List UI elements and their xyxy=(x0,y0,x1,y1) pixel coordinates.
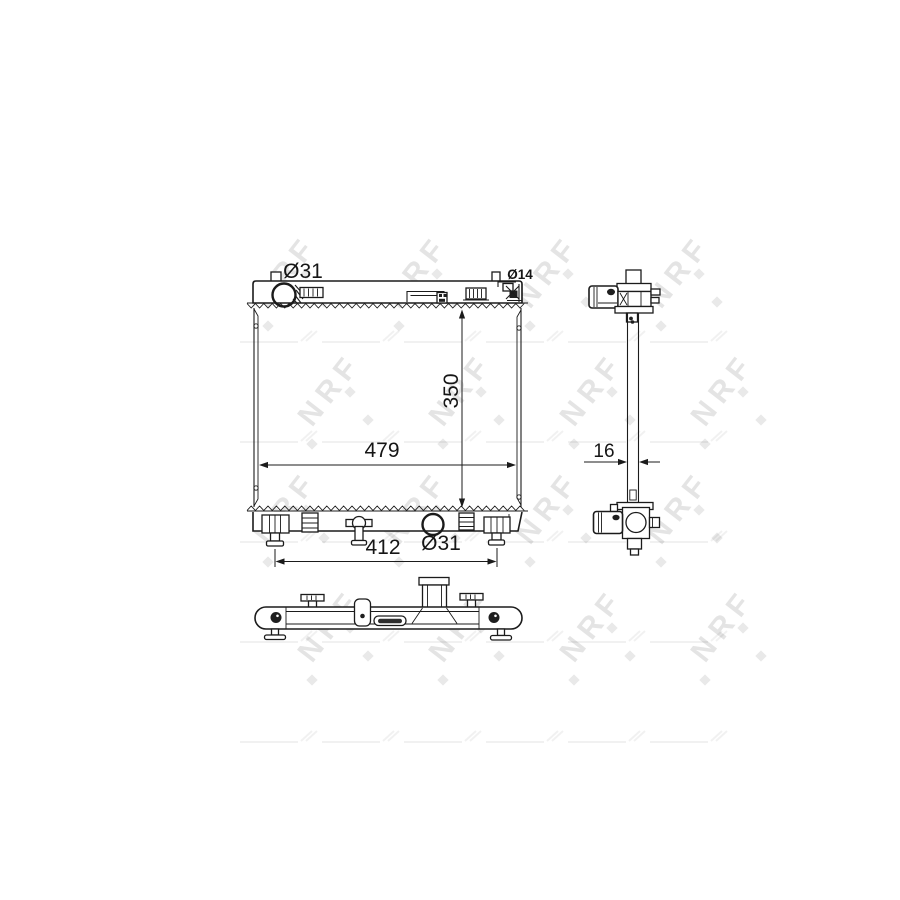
watermark-text: NRF xyxy=(554,347,631,432)
watermark-text: NRF xyxy=(292,347,369,432)
bottom-outlet-pipe xyxy=(419,578,449,609)
bottom-pin-left xyxy=(265,629,286,640)
watermark-text: NRF xyxy=(685,347,762,432)
bracket-ribbed-left xyxy=(300,288,323,298)
watermark-text: NRF xyxy=(685,583,762,668)
connector-ribbed-right xyxy=(459,513,474,530)
bottom-center-bracket xyxy=(355,599,371,626)
watermark-text: NRF xyxy=(554,583,631,668)
nrf-watermark-layer: NRFNRFNRFNRFNRFNRFNRFNRFNRFNRFNRFNRFNRFN… xyxy=(240,229,767,742)
part-label-plate xyxy=(374,616,406,626)
inlet-diameter-label: Ø31 xyxy=(283,260,323,283)
connector-ribbed-left xyxy=(302,513,318,532)
front-view: 350 479 412 Ø31 Ø14 Ø31 xyxy=(247,260,533,567)
dim-core-width-label: 479 xyxy=(364,439,399,462)
dim-core-thickness-label: 16 xyxy=(593,441,614,462)
product-image: NRFNRFNRFNRFNRFNRFNRFNRFNRFNRFNRFNRFNRFN… xyxy=(0,0,900,900)
dimension-mount-spacing: 412 xyxy=(275,536,497,567)
bottom-pin-right xyxy=(491,629,512,640)
bar-hole-right xyxy=(489,612,500,623)
outlet-diameter-label: Ø31 xyxy=(421,532,461,555)
bar-hole-left xyxy=(271,612,282,623)
side-top-fitting xyxy=(589,270,660,322)
radiator-technical-drawing: NRFNRFNRFNRFNRFNRFNRFNRFNRFNRFNRFNRFNRFN… xyxy=(0,0,900,900)
dim-mount-spacing-label: 412 xyxy=(365,536,400,559)
side-bottom-fitting xyxy=(594,503,660,556)
mount-bracket-right xyxy=(484,517,510,545)
bracket-ribbed-right xyxy=(463,288,489,300)
filler-diameter-label: Ø14 xyxy=(507,267,533,282)
side-view: 16 xyxy=(584,270,660,555)
dimension-core-thickness: 16 xyxy=(584,441,660,465)
dim-core-height-label: 350 xyxy=(440,373,463,408)
bottom-clip-left xyxy=(301,595,324,608)
dimension-core-width: 479 xyxy=(259,439,516,468)
side-core xyxy=(628,313,639,503)
